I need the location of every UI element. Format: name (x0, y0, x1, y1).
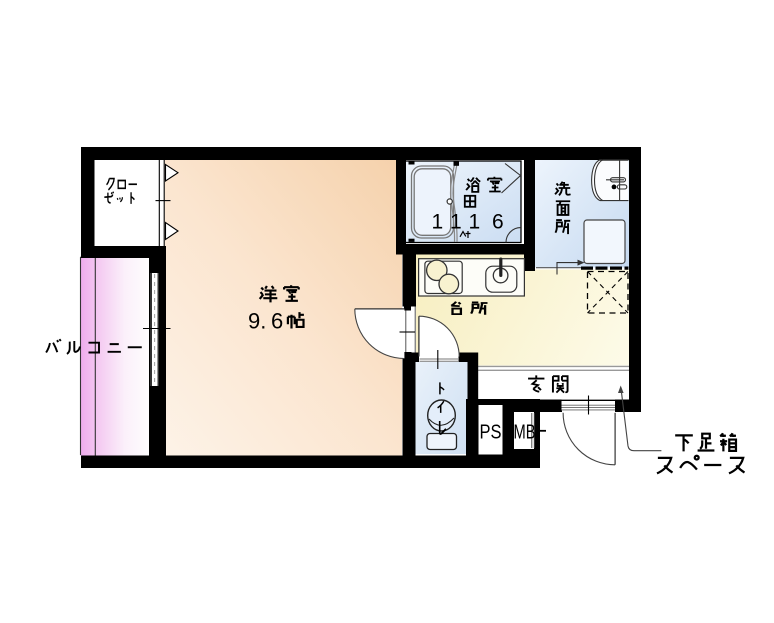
svg-text:1: 1 (469, 211, 481, 234)
svg-text:6: 6 (492, 211, 504, 234)
svg-text:PS: PS (480, 422, 502, 444)
svg-text:6: 6 (271, 309, 283, 334)
svg-text:1: 1 (432, 211, 444, 234)
svg-text:1: 1 (450, 211, 462, 234)
svg-text:MB: MB (514, 422, 536, 444)
svg-text:9.: 9. (248, 309, 266, 334)
